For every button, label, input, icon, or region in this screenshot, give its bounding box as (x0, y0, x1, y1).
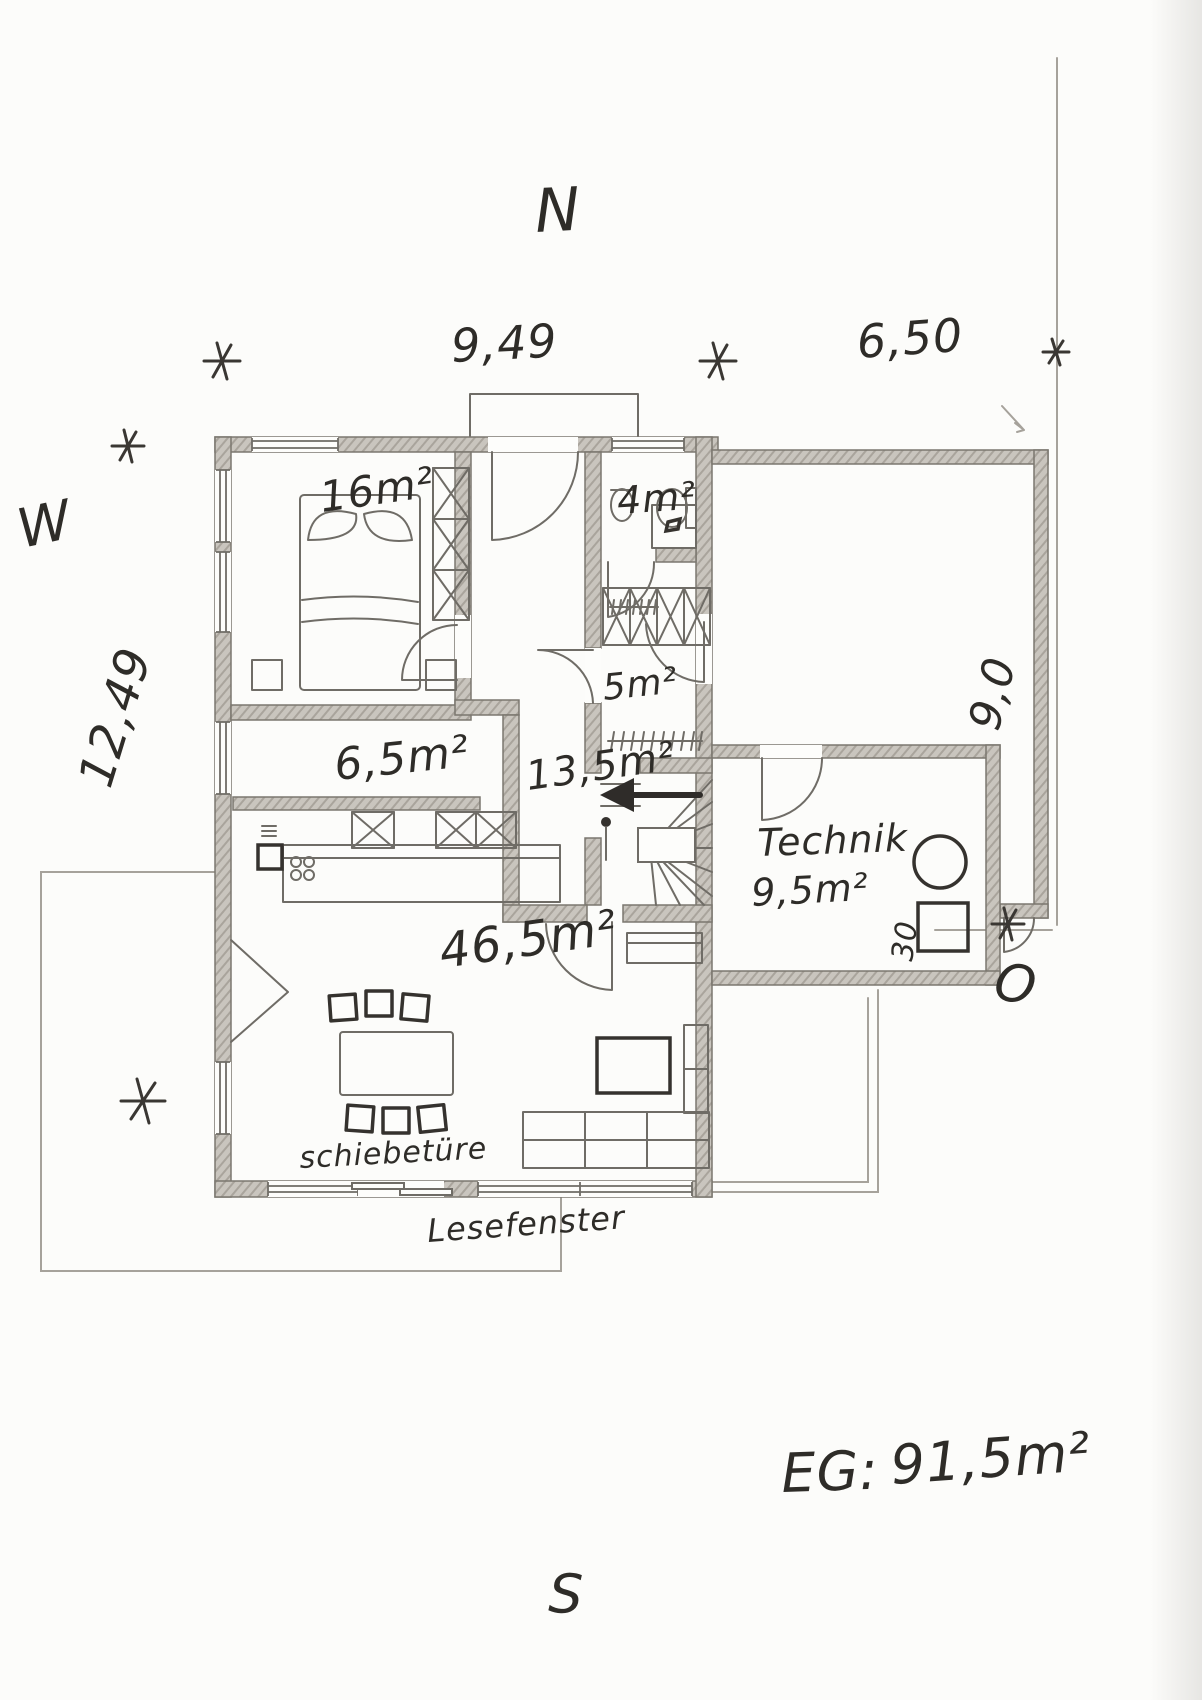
nightstand (426, 660, 456, 690)
hall-door (538, 650, 593, 703)
labels: N S W O 9,49 6,50 12,49 9,0 30 16m² 4m² … (12, 175, 1093, 1627)
entry-area-label: 13,5m² (523, 733, 678, 799)
bed (300, 495, 420, 690)
dimension-technik-clearance: 30 (885, 918, 925, 963)
hallway-area-label: 5m² (601, 660, 680, 709)
bedroom-door (402, 625, 457, 680)
boiler-tank (914, 836, 966, 888)
dining-table (340, 1032, 453, 1095)
veranda-outline (712, 990, 878, 1192)
sliding-door-panel (400, 1189, 452, 1195)
bathroom-area-label: 4m² (616, 474, 698, 523)
technik-door (762, 758, 822, 820)
reading-window-label: Lesefenster (426, 1198, 627, 1250)
dimension-house-depth: 12,49 (68, 641, 163, 794)
entrance-porch (470, 394, 638, 437)
shower-drain (666, 519, 680, 531)
compass-west-label: W (12, 487, 80, 560)
hall-closet (603, 588, 710, 645)
technik-name-label: Technik (757, 816, 910, 865)
compass-north-label: N (533, 175, 582, 247)
floor-total-area: 91,5m² (889, 1420, 1093, 1497)
sliding-door-panel (352, 1183, 404, 1189)
kitchen-vent (262, 826, 276, 836)
kitchen-area-label: 6,5m² (332, 726, 472, 791)
coffee-table (597, 1038, 670, 1093)
living-area-label: 46,5m² (436, 900, 621, 980)
kitchen-counter (233, 797, 480, 810)
sideboard (627, 933, 702, 963)
dimension-house-width: 9,49 (450, 313, 559, 372)
nightstand (252, 660, 282, 690)
stair-newel (601, 817, 611, 827)
floor-plan-sheet: N S W O 9,49 6,50 12,49 9,0 30 16m² 4m² … (0, 0, 1202, 1700)
kitchen-tall-cabinets (352, 812, 516, 848)
sliding-door-label: schiebetüre (299, 1131, 489, 1176)
hob-burners (291, 857, 314, 880)
compass-south-label: S (548, 1562, 585, 1626)
technik-area-label: 9,5m² (750, 865, 870, 915)
compass-east-label: O (990, 952, 1042, 1018)
oven (258, 845, 282, 869)
stair-landing (638, 828, 695, 862)
heating-unit (918, 903, 968, 951)
floor-plan-drawing: N S W O 9,49 6,50 12,49 9,0 30 16m² 4m² … (0, 0, 1202, 1700)
floor-total-label: EG: (780, 1439, 879, 1505)
entrance-door (492, 452, 578, 540)
dimension-garage-depth: 9,0 (959, 652, 1026, 735)
terrace-double-door (231, 940, 288, 1042)
sofa (523, 1025, 709, 1168)
dimension-garage-width: 6,50 (855, 308, 965, 369)
dining-chairs (329, 991, 446, 1133)
